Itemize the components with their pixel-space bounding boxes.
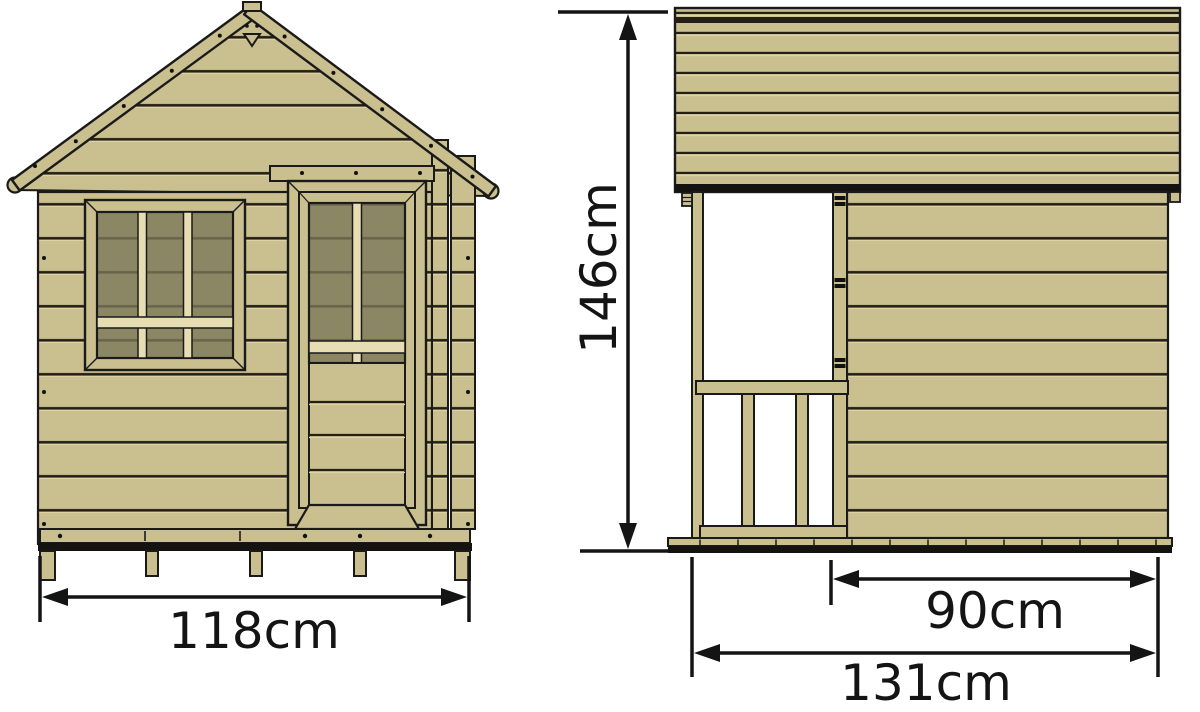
door-header (270, 166, 434, 181)
nail (418, 171, 422, 175)
nail (255, 24, 259, 28)
side-base-beam (668, 546, 1172, 553)
porch-railing (696, 381, 848, 538)
dim-cabin-depth: 90cm (831, 560, 1156, 640)
height-label: 146cm (570, 182, 628, 354)
arrow-left (42, 588, 68, 606)
cabin-depth-label: 90cm (925, 582, 1065, 640)
post-bracket (682, 193, 692, 206)
arrow-down (619, 523, 637, 549)
arrow-left (833, 570, 859, 588)
side-view (668, 8, 1180, 553)
porch-post (692, 192, 703, 538)
dim-height: 146cm (558, 12, 670, 551)
front-door (270, 166, 434, 529)
nail (58, 534, 62, 538)
window-glass (97, 212, 233, 358)
side-base (668, 538, 1172, 553)
nail (245, 24, 249, 28)
window-mid-rail (97, 317, 233, 328)
nail (358, 534, 362, 538)
front-base (38, 529, 472, 580)
arrow-right (441, 588, 467, 606)
window-muntin (138, 212, 147, 358)
ridge-finial (243, 2, 261, 11)
nail (42, 390, 46, 394)
nail (466, 390, 470, 394)
front-corner-trim (432, 140, 475, 529)
arrow-up (619, 14, 637, 40)
front-width-label: 118cm (168, 602, 340, 660)
side-porch (682, 192, 848, 538)
window-muntin (184, 212, 193, 358)
nail (354, 171, 358, 175)
nail (466, 256, 470, 260)
front-window (85, 200, 245, 370)
arrow-left (694, 644, 720, 662)
door-muntin (353, 203, 362, 363)
roof-ridge-band (675, 17, 1180, 23)
nail (466, 522, 470, 526)
side-roof (675, 8, 1180, 192)
diagram-canvas: 146cm 118cm 90cm 131cm (0, 0, 1200, 712)
nail (300, 171, 304, 175)
side-wall (847, 192, 1180, 538)
front-view (8, 2, 499, 580)
porch-floor-edge (668, 538, 1172, 546)
roof-corner-bracket (1170, 192, 1180, 202)
baluster (742, 394, 754, 530)
playhouse-dimension-diagram: 146cm 118cm 90cm 131cm (0, 0, 1200, 712)
total-depth-label: 131cm (840, 654, 1012, 712)
railing-top-rail (696, 381, 848, 394)
baluster (796, 394, 808, 530)
nail (303, 534, 307, 538)
door-threshold (295, 505, 419, 529)
door-mid-rail (309, 341, 405, 353)
front-base-beam (38, 543, 472, 551)
front-sill (40, 529, 470, 543)
nail (42, 256, 46, 260)
railing-bottom-rail (700, 526, 847, 538)
nail (42, 522, 46, 526)
arrow-right (1130, 644, 1156, 662)
front-feet (40, 551, 470, 580)
nail (428, 534, 432, 538)
arrow-right (1130, 570, 1156, 588)
roof-eave-band (675, 184, 1180, 192)
